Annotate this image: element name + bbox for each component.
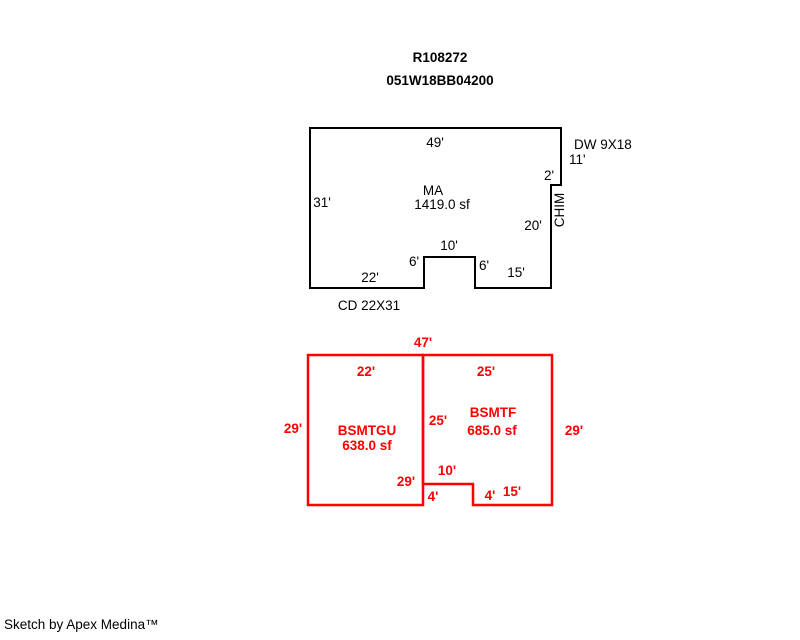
- bsmtgu-dim-left: 29': [284, 421, 302, 436]
- ma-dim-right-step: 2': [544, 168, 554, 183]
- ma-dim-right-lower: 20': [524, 218, 542, 233]
- bsmtf-label: BSMTF: [470, 405, 517, 420]
- credit-text: Sketch by Apex Medina™: [4, 617, 159, 632]
- bsmtf-dim-top: 25': [477, 364, 495, 379]
- bsmt-dim-total-width: 47': [414, 335, 432, 350]
- ma-dim-bottom-right: 15': [507, 265, 525, 280]
- bsmtf-dim-bottom: 15': [503, 484, 521, 499]
- property-sketch-page: R108272 051W18BB04200 49' DW 9X18 11' 2'…: [0, 0, 800, 640]
- bsmtf-area: 685.0 sf: [467, 423, 517, 438]
- bsmtf-dim-notch-top: 10': [438, 463, 456, 478]
- ma-label: MA: [423, 183, 443, 198]
- sketch-canvas: R108272 051W18BB04200 49' DW 9X18 11' 2'…: [0, 0, 800, 640]
- bsmtgu-dim-divider: 29': [397, 474, 415, 489]
- chimney-label: CHIM: [552, 193, 567, 228]
- ma-dim-notch-left: 6': [409, 254, 419, 269]
- carport-label: CD 22X31: [338, 298, 400, 313]
- ma-dim-notch-top: 10': [440, 238, 458, 253]
- bsmtgu-label: BSMTGU: [338, 423, 397, 438]
- record-id: R108272: [413, 50, 468, 65]
- bsmtf-dim-notch-left: 4': [428, 489, 439, 504]
- bsmtgu-area: 638.0 sf: [342, 438, 392, 453]
- ma-dim-bottom-left: 22': [361, 270, 379, 285]
- bsmtf-dim-notch-right: 4': [485, 488, 496, 503]
- deck-label: DW 9X18: [574, 137, 632, 152]
- ma-dim-top: 49': [426, 135, 444, 150]
- ma-dim-left: 31': [313, 195, 331, 210]
- ma-dim-notch-right: 6': [479, 258, 489, 273]
- ma-dim-right-upper: 11': [569, 152, 586, 167]
- ma-area: 1419.0 sf: [414, 197, 470, 212]
- parcel-number: 051W18BB04200: [386, 73, 493, 88]
- bsmtgu-dim-top: 22': [357, 364, 375, 379]
- bsmtf-dim-left: 25': [429, 413, 447, 428]
- bsmtf-dim-right: 29': [565, 423, 583, 438]
